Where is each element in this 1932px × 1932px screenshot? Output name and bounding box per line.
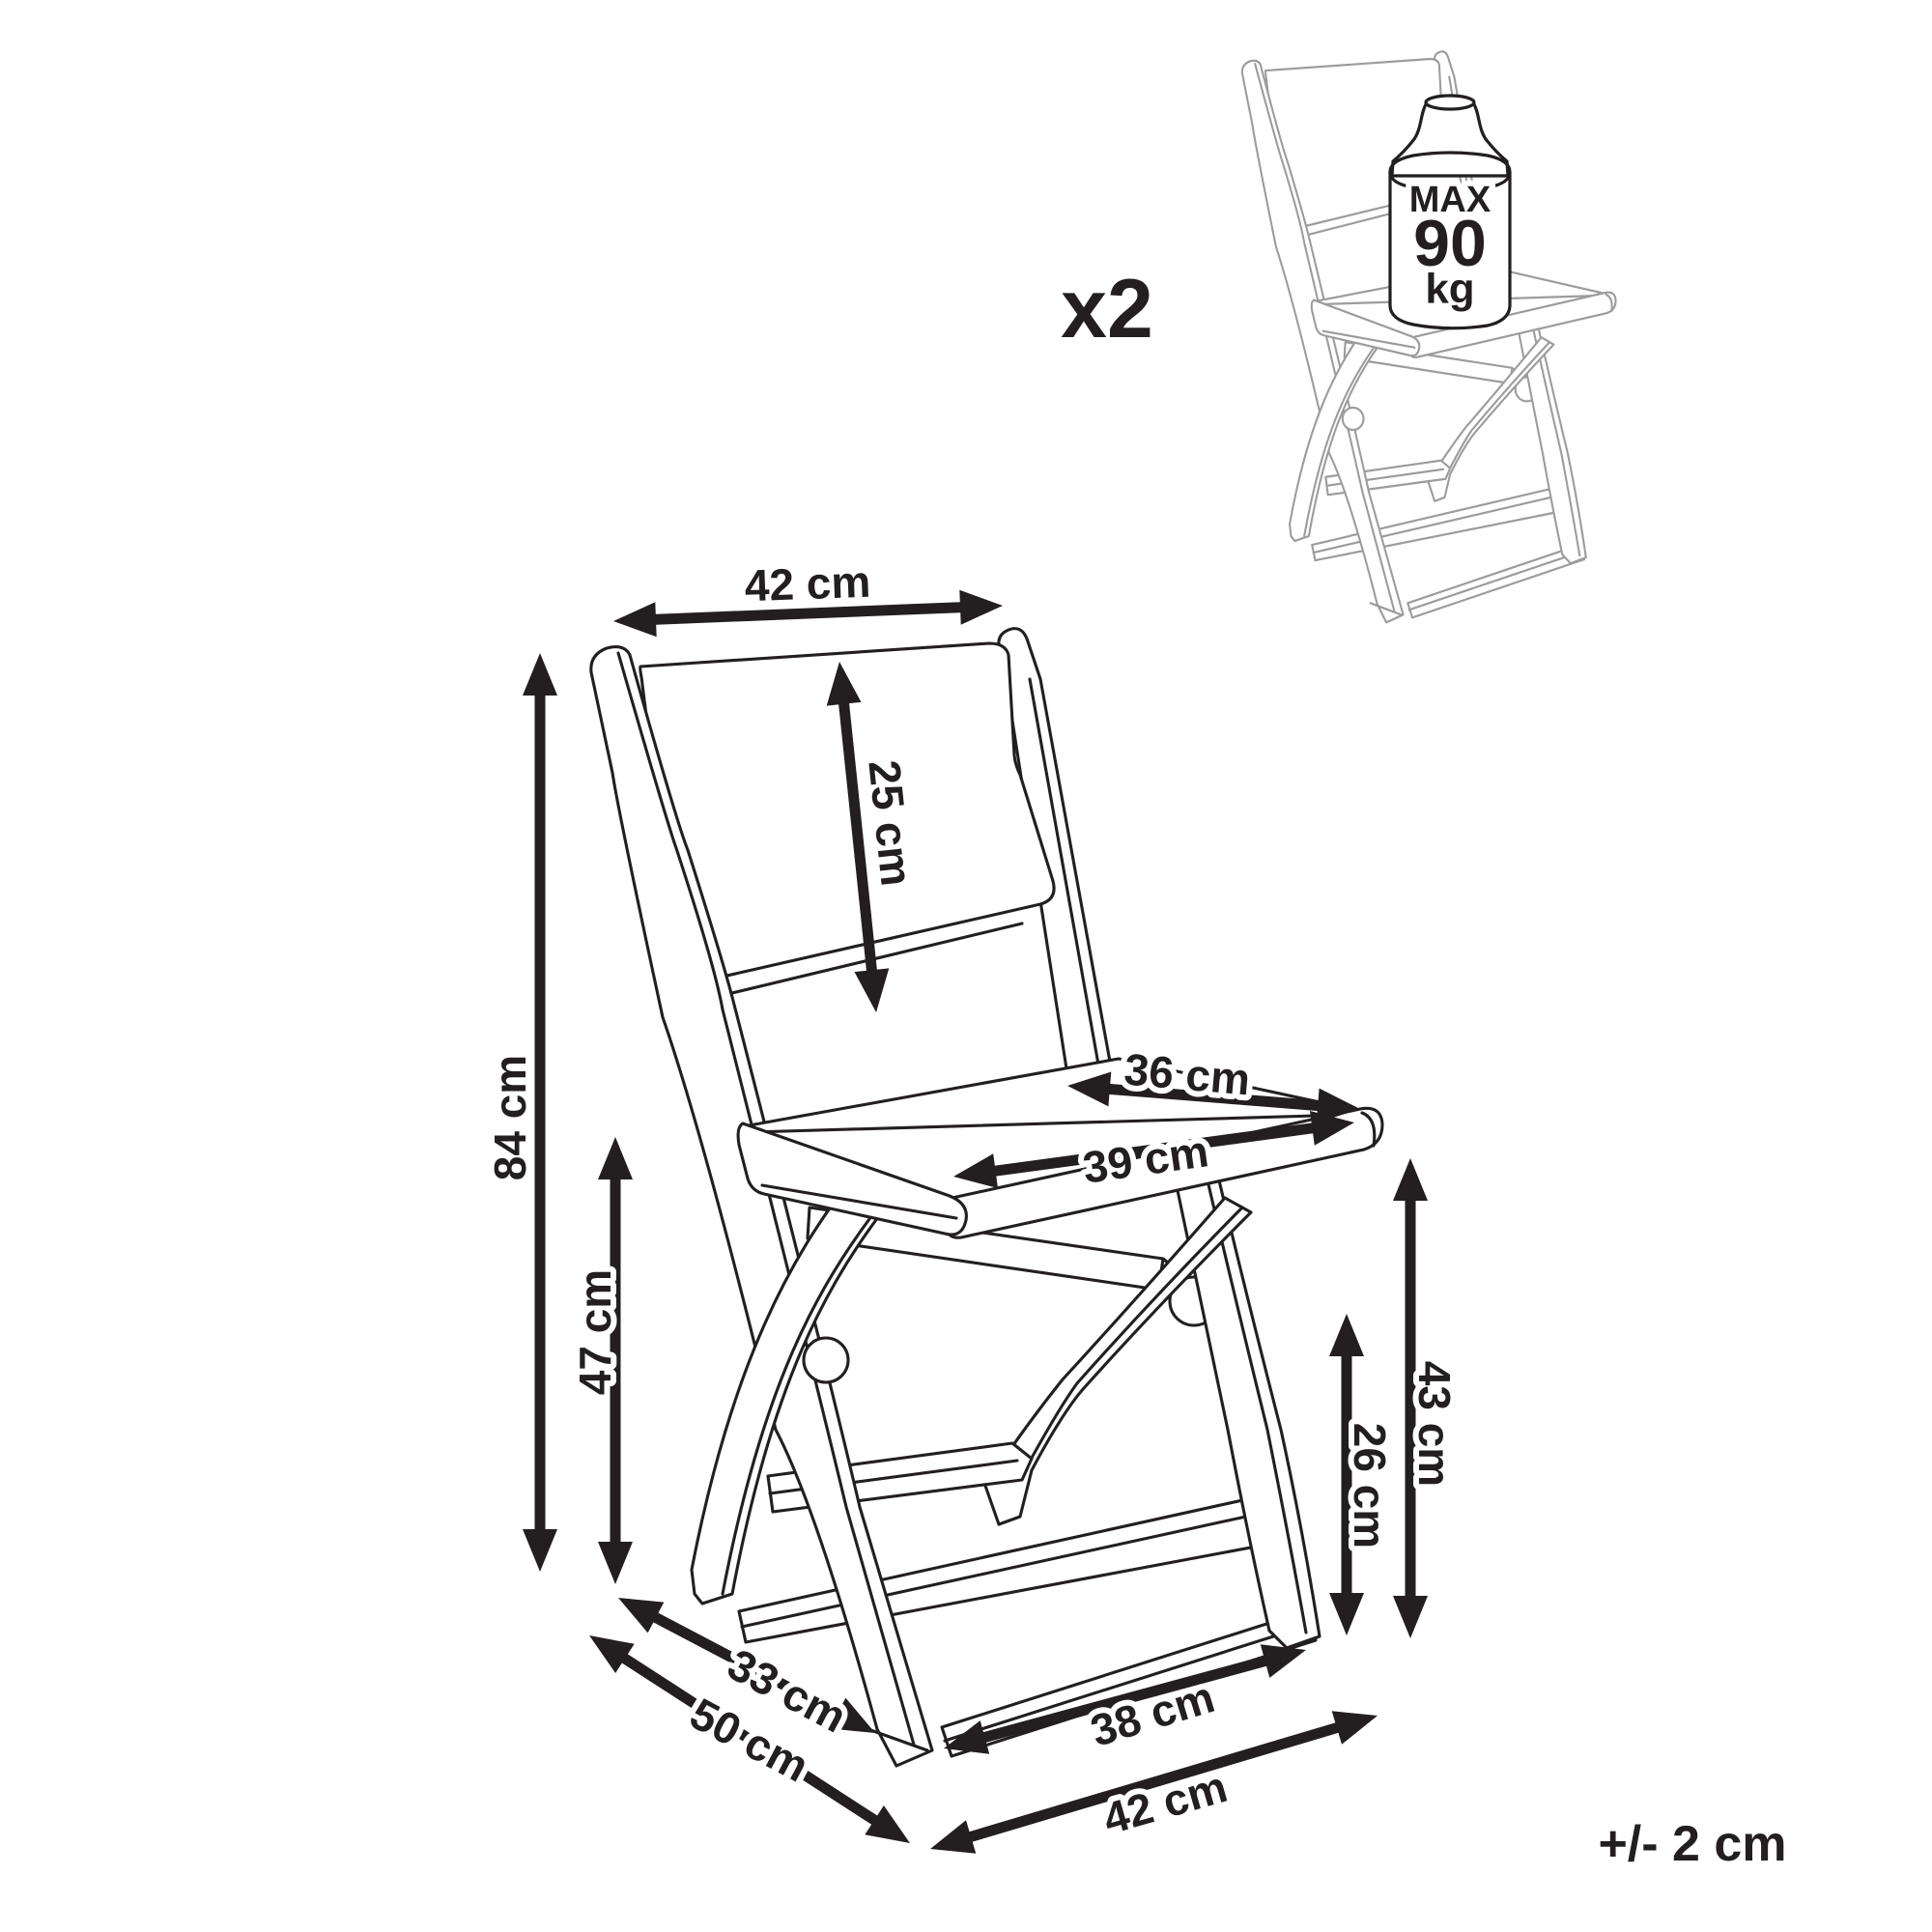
svg-text:26 cm: 26 cm <box>1345 1423 1395 1548</box>
svg-text:47 cm: 47 cm <box>570 1269 620 1395</box>
svg-text:42 cm: 42 cm <box>744 556 871 611</box>
svg-text:+/- 2 cm: +/- 2 cm <box>1598 1816 1786 1872</box>
svg-text:kg: kg <box>1425 266 1474 313</box>
svg-text:x2: x2 <box>1061 263 1153 355</box>
svg-text:43 cm: 43 cm <box>1409 1361 1460 1487</box>
svg-text:84 cm: 84 cm <box>485 1055 535 1180</box>
